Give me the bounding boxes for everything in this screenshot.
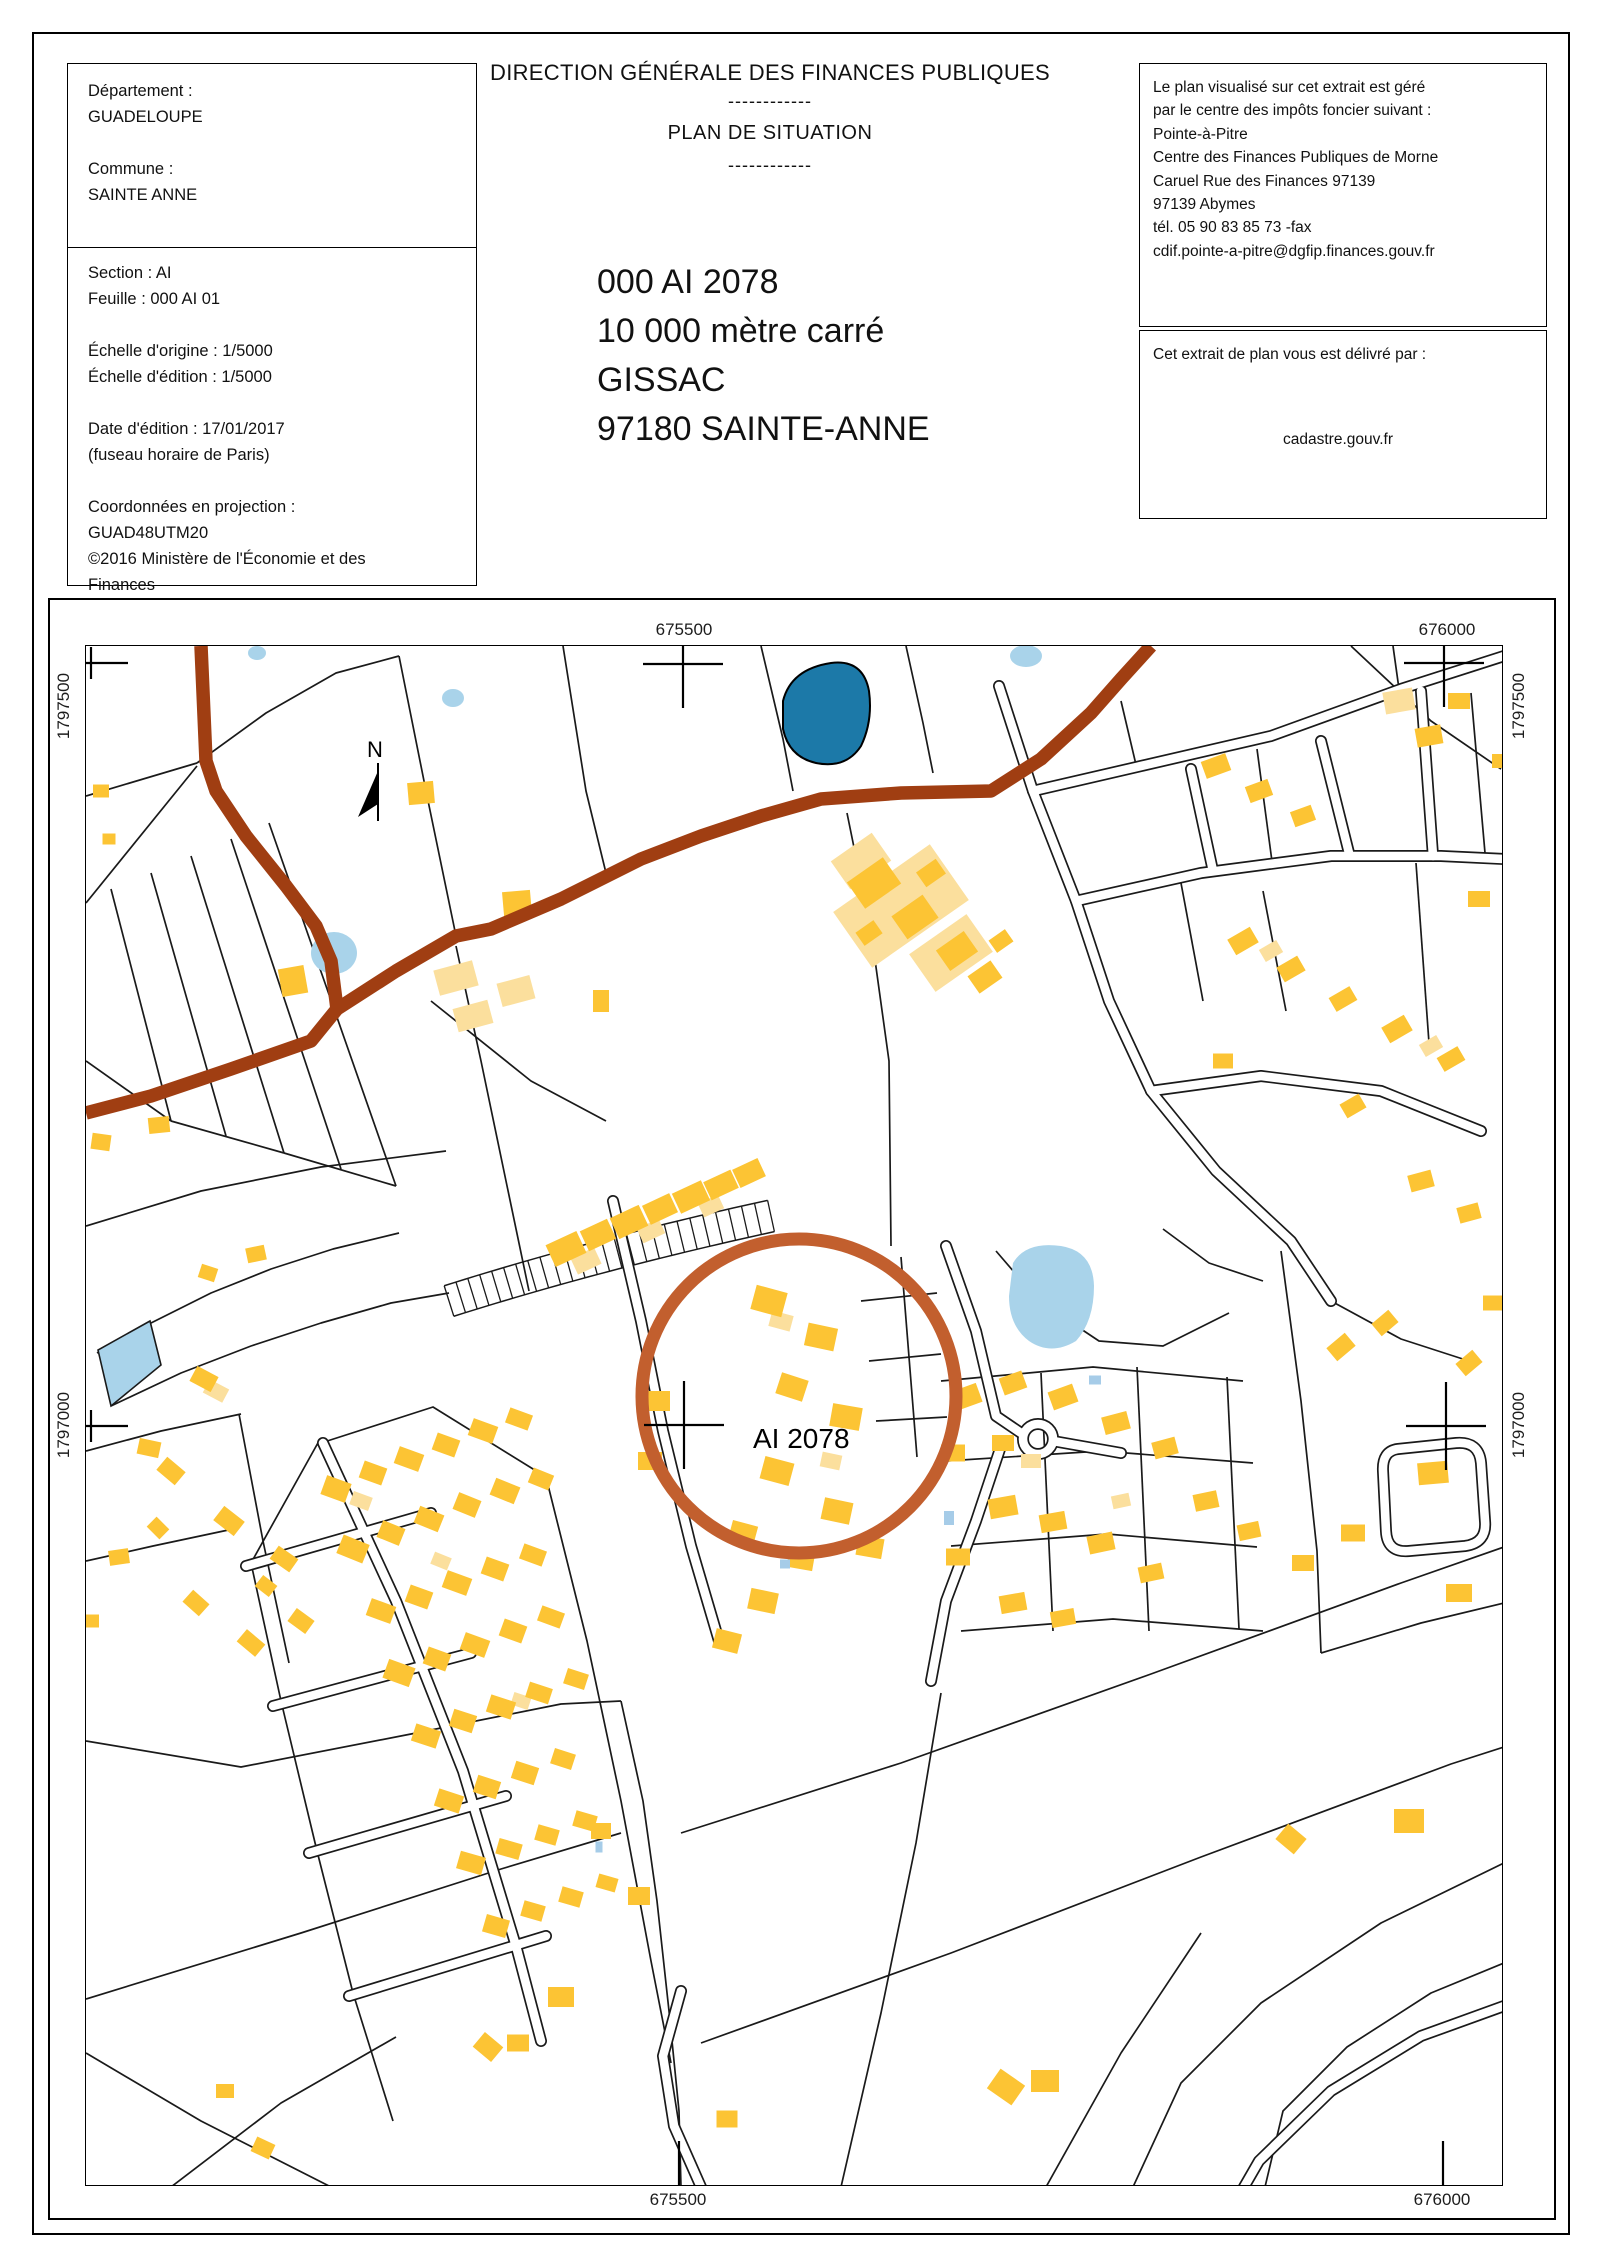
projection-label: Coordonnées en projection :	[88, 494, 476, 520]
building	[1456, 1202, 1481, 1223]
building	[1227, 927, 1259, 956]
parcel-boundary	[1041, 1373, 1053, 1631]
building	[198, 1264, 218, 1283]
parcel-boundary	[546, 1477, 671, 2063]
fuseau-line: (fuseau horaire de Paris)	[88, 442, 476, 468]
building	[86, 1615, 99, 1628]
building	[747, 1588, 779, 1614]
parcel-boundary	[1416, 863, 1429, 1043]
building	[481, 1556, 510, 1581]
section-info-box: Section : AI Feuille : 000 AI 01 Échelle…	[67, 247, 477, 586]
section-line: Section : AI	[88, 260, 476, 286]
strip-parcel-line	[480, 1275, 489, 1306]
road-fill	[1053, 1441, 1121, 1453]
road-fill	[1076, 856, 1503, 901]
departement-value: GUADELOUPE	[88, 104, 476, 130]
building	[511, 1761, 539, 1786]
cadastral-extract-page: Département : GUADELOUPE Commune : SAINT…	[0, 0, 1600, 2264]
parcel-boundary	[1281, 1251, 1321, 1653]
road-loop-fill	[1383, 1443, 1485, 1551]
north-label: N	[367, 737, 383, 762]
building	[1050, 1608, 1076, 1628]
building	[1138, 1563, 1165, 1584]
building	[987, 2069, 1025, 2106]
building	[394, 1446, 425, 1472]
building-light	[1021, 1454, 1041, 1468]
parcel-boundary	[1137, 1367, 1149, 1631]
building-light	[1111, 1493, 1131, 1509]
building	[1371, 1310, 1398, 1336]
building	[499, 1618, 528, 1643]
parcel-boundary	[1471, 693, 1485, 853]
parcel-boundary	[86, 1151, 446, 1226]
road-fill	[1244, 2006, 1503, 2186]
building	[520, 1900, 546, 1921]
building	[414, 1506, 445, 1532]
strip-parcel-line	[516, 1264, 525, 1295]
grid-label-left-1797500: 1797500	[54, 673, 74, 739]
building-light	[820, 1452, 843, 1471]
strip-parcel-line	[540, 1257, 549, 1288]
building	[1492, 754, 1503, 768]
grid-label-top-675500: 675500	[656, 620, 713, 640]
strip-parcel-line	[690, 1218, 697, 1249]
delivery-box: Cet extrait de plan vous est délivré par…	[1139, 330, 1547, 519]
road-fill	[1191, 769, 1213, 871]
department-commune-box: Département : GUADELOUPE Commune : SAINT…	[67, 63, 477, 249]
parcel-boundary	[1181, 883, 1203, 1001]
building	[432, 1432, 461, 1457]
building-light	[430, 1552, 452, 1571]
building	[1417, 1461, 1449, 1486]
building	[558, 1886, 584, 1907]
parcel-boundary	[1163, 1229, 1263, 1281]
strip-parcel-line	[456, 1282, 466, 1313]
building	[642, 1193, 678, 1225]
building	[442, 1570, 473, 1596]
building	[534, 1824, 560, 1845]
highlight-parcel-label: AI 2078	[753, 1423, 850, 1454]
projection-value: GUAD48UTM20	[88, 520, 476, 546]
parcel-boundary	[86, 2053, 331, 2186]
building	[137, 1438, 162, 1458]
building	[93, 785, 109, 798]
building	[550, 1748, 576, 1770]
building-light	[1259, 940, 1283, 962]
plan-subtitle: PLAN DE SITUATION	[420, 116, 1120, 150]
building	[1048, 1384, 1079, 1411]
strip-parcel-line	[768, 1200, 775, 1231]
date-edition-line: Date d'édition : 17/01/2017	[88, 416, 476, 442]
building	[1039, 1511, 1068, 1533]
building	[712, 1628, 742, 1654]
building-light	[453, 1000, 494, 1032]
building-annex-blue	[944, 1511, 954, 1525]
parcel-id: 000 AI 2078	[597, 258, 930, 307]
building-annex-blue	[1089, 1376, 1101, 1385]
building	[1329, 986, 1358, 1012]
building	[456, 1851, 486, 1875]
road-fill	[1421, 691, 1433, 856]
building	[987, 1495, 1018, 1520]
building	[537, 1605, 565, 1628]
parcel-boundary	[1331, 1301, 1469, 1361]
building	[473, 2032, 504, 2062]
parcel-boundary	[869, 1354, 941, 1361]
building	[775, 1372, 808, 1402]
parcel-boundary	[1257, 749, 1273, 869]
tax-center-email: cdif.pointe-a-pitre@dgfip.finances.gouv.…	[1153, 240, 1546, 263]
building	[703, 1170, 739, 1201]
strip-parcel-line	[741, 1206, 748, 1237]
building	[591, 1823, 611, 1839]
strip-parcel-line	[754, 1203, 761, 1234]
water-parcel	[98, 1321, 161, 1406]
building	[287, 1608, 314, 1634]
building	[495, 1838, 522, 1860]
commune-value: SAINTE ANNE	[88, 182, 476, 208]
building	[1407, 1170, 1435, 1193]
building-annex-blue	[596, 1842, 603, 1853]
map-drawing: AI 2078N	[86, 646, 1503, 2186]
building	[580, 1219, 616, 1252]
building	[1192, 1490, 1219, 1512]
grid-label-left-1797000: 1797000	[54, 1392, 74, 1458]
divider-dashes: ------------	[420, 86, 1120, 116]
pond	[442, 689, 464, 707]
pond-deep	[783, 663, 870, 765]
building-light	[433, 960, 478, 995]
building	[1276, 956, 1305, 983]
parcel-boundary	[86, 1414, 241, 1451]
parcel-boundary	[171, 1121, 284, 1153]
parcel-boundary	[1393, 646, 1399, 689]
strip-parcel-line	[677, 1221, 685, 1252]
parcel-area: 10 000 mètre carré	[597, 307, 930, 356]
copyright-line2: Finances	[88, 572, 476, 598]
strip-parcel-line	[528, 1261, 537, 1292]
feuille-line: Feuille : 000 AI 01	[88, 286, 476, 312]
building	[1448, 693, 1470, 709]
road-casing	[1244, 2006, 1503, 2186]
building	[628, 1887, 650, 1905]
parcel-boundary	[876, 1417, 947, 1421]
building	[505, 1407, 533, 1430]
building	[989, 929, 1014, 953]
tax-center-postal: 97139 Abymes	[1153, 193, 1546, 216]
grid-label-right-1797000: 1797000	[1509, 1392, 1529, 1458]
cadastral-map: AI 2078N	[85, 645, 1503, 2186]
building	[1245, 779, 1273, 803]
building	[108, 1548, 130, 1566]
strip-parcel-line	[716, 1212, 723, 1243]
building	[490, 1478, 521, 1504]
strip-parcels-rail	[454, 1232, 775, 1317]
building	[90, 1133, 111, 1151]
strip-parcel-line	[504, 1268, 513, 1299]
parcel-boundary	[961, 1619, 1263, 1631]
building	[507, 2035, 529, 2052]
building-light	[496, 975, 535, 1007]
parcel-boundary	[1265, 1963, 1503, 2186]
building	[732, 1158, 766, 1188]
building	[760, 1456, 795, 1486]
building	[156, 1457, 185, 1485]
grid-label-bottom-676000: 676000	[1414, 2190, 1471, 2210]
building	[595, 1874, 618, 1893]
building	[821, 1497, 854, 1525]
delivery-intro: Cet extrait de plan vous est délivré par…	[1153, 343, 1546, 366]
building	[1381, 1015, 1413, 1044]
strip-parcel-line	[703, 1215, 710, 1246]
building	[245, 1245, 267, 1264]
main-road	[86, 646, 1151, 1113]
building	[278, 965, 308, 997]
parcel-boundary	[1227, 1377, 1239, 1629]
building	[1455, 1350, 1482, 1376]
echelle-edition-line: Échelle d'édition : 1/5000	[88, 364, 476, 390]
tax-center-address2: Caruel Rue des Finances 97139	[1153, 170, 1546, 193]
echelle-origine-line: Échelle d'origine : 1/5000	[88, 338, 476, 364]
building	[468, 1418, 499, 1444]
building	[528, 1467, 554, 1490]
building	[148, 1116, 171, 1134]
building-light	[1419, 1035, 1443, 1057]
parcel-boundary	[563, 646, 606, 873]
building	[237, 1629, 266, 1657]
building	[1341, 1525, 1365, 1542]
grid-label-right-1797500: 1797500	[1509, 673, 1529, 739]
tax-center-phone: tél. 05 90 83 85 73 -fax	[1153, 216, 1546, 239]
parcel-lieu-dit: GISSAC	[597, 356, 930, 405]
parcel-boundary	[86, 1701, 621, 1767]
building	[999, 1592, 1028, 1614]
building	[1101, 1411, 1131, 1435]
tax-center-city: Pointe-à-Pitre	[1153, 123, 1546, 146]
parcel-boundary	[906, 646, 933, 773]
building	[407, 781, 435, 805]
road-casing	[999, 686, 1331, 1301]
building	[593, 990, 609, 1012]
parcel-boundary	[111, 1293, 449, 1406]
building	[359, 1460, 388, 1485]
document-header: DIRECTION GÉNÉRALE DES FINANCES PUBLIQUE…	[420, 60, 1120, 180]
building	[405, 1584, 434, 1609]
building	[486, 1694, 516, 1719]
building	[519, 1543, 547, 1566]
grid-label-bottom-675500: 675500	[650, 2190, 707, 2210]
parcel-boundary	[191, 856, 284, 1153]
road-fill	[1321, 741, 1349, 853]
parcel-boundary	[1121, 701, 1137, 769]
strip-parcel-line	[468, 1278, 477, 1309]
building	[411, 1723, 441, 1748]
pond	[248, 646, 266, 660]
provider-name: cadastre.gouv.fr	[1153, 428, 1523, 451]
building	[1213, 1054, 1233, 1069]
copyright-line: ©2016 Ministère de l'Économie et des	[88, 546, 476, 572]
building	[1151, 1437, 1179, 1460]
building	[147, 1517, 170, 1540]
building	[453, 1492, 482, 1518]
building	[750, 1285, 787, 1317]
building	[1483, 1296, 1503, 1311]
grid-label-top-676000: 676000	[1419, 620, 1476, 640]
parcel-boundary	[701, 1747, 1503, 2043]
road-loop-casing	[1383, 1443, 1485, 1551]
parcel-boundary	[284, 1153, 396, 1186]
building	[1237, 1521, 1262, 1541]
building	[1292, 1555, 1314, 1571]
building	[182, 1590, 209, 1617]
building	[1437, 1046, 1466, 1072]
building	[946, 1549, 970, 1566]
parcel-commune: 97180 SAINTE-ANNE	[597, 405, 930, 454]
departement-label: Département :	[88, 78, 476, 104]
strip-parcel-line	[444, 1286, 454, 1317]
building	[103, 834, 116, 845]
building	[992, 1435, 1014, 1451]
road-fill	[999, 686, 1331, 1301]
commune-label: Commune :	[88, 156, 476, 182]
building	[717, 2111, 738, 2128]
pond	[1009, 1245, 1094, 1348]
building	[1446, 1584, 1472, 1602]
tax-center-address: Centre des Finances Publiques de Morne	[1153, 146, 1546, 169]
building	[1326, 1333, 1355, 1361]
divider-dashes: ------------	[420, 150, 1120, 180]
building	[1339, 1094, 1366, 1119]
building	[1394, 1809, 1424, 1833]
tax-center-box: Le plan visualisé sur cet extrait est gé…	[1139, 63, 1547, 327]
strip-parcel-line	[728, 1209, 735, 1240]
parcel-summary: 000 AI 2078 10 000 mètre carré GISSAC 97…	[597, 258, 930, 454]
building	[1031, 2070, 1059, 2092]
building	[216, 2084, 234, 2098]
parcel-boundary	[1046, 1933, 1201, 2186]
strip-parcel-line	[492, 1271, 501, 1302]
building	[548, 1987, 574, 2007]
tax-center-line: Le plan visualisé sur cet extrait est gé…	[1153, 76, 1546, 99]
building	[1290, 805, 1316, 828]
tax-center-line: par le centre des impôts foncier suivant…	[1153, 99, 1546, 122]
building-annex-blue	[780, 1560, 790, 1569]
north-arrow-icon	[358, 771, 378, 817]
parcel-boundary	[1321, 1603, 1503, 1653]
strip-parcel-line	[664, 1224, 672, 1255]
building	[563, 1668, 589, 1690]
road-fill	[1151, 1076, 1481, 1131]
page-title: DIRECTION GÉNÉRALE DES FINANCES PUBLIQUE…	[420, 60, 1120, 86]
building	[1468, 891, 1490, 907]
building	[804, 1323, 838, 1352]
pond	[1010, 646, 1042, 667]
